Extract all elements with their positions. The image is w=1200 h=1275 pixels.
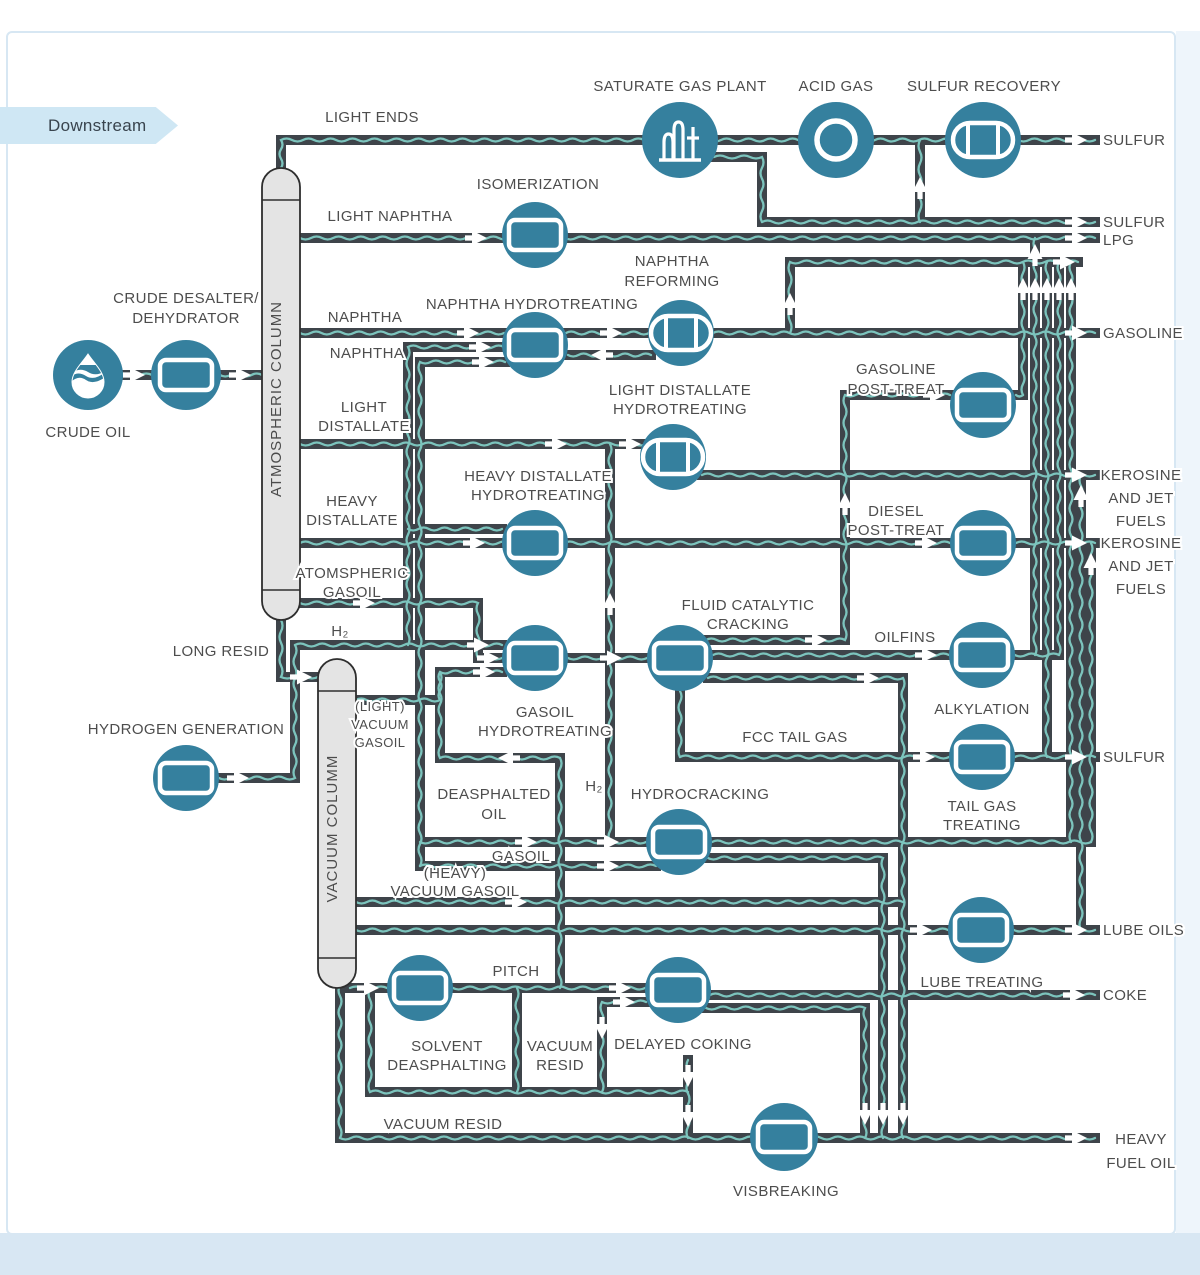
gasoil-label: GASOIL	[492, 848, 550, 865]
pipe-segment	[714, 157, 762, 222]
unit-circle	[387, 955, 453, 1021]
heavy-distallate-hydrotreating-label: HEAVY DISTALLATE	[464, 468, 612, 485]
flow-arrow-icon	[805, 633, 827, 648]
output-labels-layer: SULFURSULFURLPGGASOLINEKEROSINEAND JETFU…	[1101, 132, 1185, 1172]
light-distallate-hydrotreating-unit	[640, 424, 706, 490]
gasoline-post-treat-label: POST-TREAT	[847, 381, 944, 398]
hydrocracking-label: HYDROCRACKING	[631, 786, 770, 803]
naphtha-2-label: NAPHTHA	[330, 345, 404, 362]
heavy-vacuum-gasoil-label: (HEAVY)	[424, 865, 487, 882]
fluid-catalytic-cracking-unit	[647, 625, 713, 691]
unit-circle	[153, 745, 219, 811]
vacuum-resid-label: VACUUM RESID	[384, 1116, 503, 1133]
alkylation-unit	[949, 622, 1015, 688]
flow-arrow-icon	[227, 771, 249, 786]
flow-arrow-icon	[603, 593, 618, 615]
naphtha-reforming-label: REFORMING	[624, 273, 719, 290]
light-vacuum-gasoil-label: GASOIL	[355, 735, 406, 750]
light-distallate-label: LIGHT	[341, 399, 387, 416]
fluid-catalytic-cracking-label: CRACKING	[707, 616, 789, 633]
crude-oil-unit	[53, 340, 123, 410]
long-resid-label: LONG RESID	[173, 643, 270, 660]
flow-arrow-icon	[858, 1103, 873, 1125]
crude-desalter-unit	[151, 340, 221, 410]
heavy-distallate-hydrotreating-unit	[502, 510, 568, 576]
flow-arrow-icon	[595, 1017, 610, 1039]
tail-gas-treating-label: TREATING	[943, 817, 1021, 834]
heavy-vacuum-gasoil-label: VACUUM GASOIL	[390, 883, 519, 900]
tail-gas-treating-label: TAIL GAS	[947, 798, 1016, 815]
light-ends-label: LIGHT ENDS	[325, 109, 419, 126]
diesel-post-treat-unit	[950, 510, 1016, 576]
flow-arrow-icon	[1065, 215, 1087, 230]
flow-arrow-icon	[609, 981, 631, 996]
gasoline-post-treat-label: GASOLINE	[856, 361, 936, 378]
acid-gas-unit	[798, 102, 874, 178]
gasoline-label: GASOLINE	[1103, 325, 1183, 342]
saturate-gas-plant-unit	[642, 102, 718, 178]
flow-arrow-icon	[1065, 133, 1087, 148]
flow-arrow-icon	[498, 751, 520, 766]
kerosine-jet-2-label: AND JET	[1108, 558, 1173, 575]
flow-arrow-icon	[896, 1103, 911, 1125]
flow-arrow-icon	[600, 326, 622, 341]
unit-circle	[948, 897, 1014, 963]
gasoil-hydrotreating-unit	[502, 625, 568, 691]
fcc-tail-gas-label: FCC TAIL GAS	[742, 729, 847, 746]
acid-gas-label: ACID GAS	[799, 78, 874, 95]
flow-arrow-icon	[123, 368, 145, 383]
coke-label: COKE	[1103, 987, 1147, 1004]
delayed-coking-label: DELAYED COKING	[614, 1036, 752, 1053]
hydrogen-generation-label: HYDROGEN GENERATION	[88, 721, 285, 738]
heavy-fuel-oil-label: FUEL OIL	[1106, 1155, 1175, 1172]
vacuum-resid-box-label: VACUUM	[527, 1038, 593, 1055]
naphtha-reforming-label: NAPHTHA	[635, 253, 709, 270]
atomspheric-gasoil-label: GASOIL	[323, 584, 381, 601]
flow-arrow-icon	[1040, 278, 1055, 300]
light-vacuum-gasoil-label: VACUUM	[351, 717, 409, 732]
process-flow-diagram: ATMOSPHERIC COLUMNVACUUM COLUMMCRUDE OIL…	[0, 0, 1200, 1275]
isomerization-unit	[502, 202, 568, 268]
flow-arrow-icon	[357, 981, 379, 996]
h2-1-label: H₂	[331, 623, 348, 640]
vacuum-column: VACUUM COLUMM	[318, 659, 356, 988]
sulfur-3-label: SULFUR	[1103, 749, 1165, 766]
flow-arrow-icon	[472, 355, 494, 370]
unit-circle	[645, 957, 711, 1023]
alkylation-label: ALKYLATION	[934, 701, 1029, 718]
unit-circle	[640, 424, 706, 490]
fluid-catalytic-cracking-label: FLUID CATALYTIC	[682, 597, 815, 614]
deasphalted-oil-label: OIL	[481, 806, 506, 823]
flow-arrow-icon	[1028, 278, 1043, 300]
lube-treating-label: LUBE TREATING	[920, 974, 1043, 991]
flow-arrow-icon	[681, 1065, 696, 1087]
downstream-banner-label: Downstream	[0, 116, 146, 136]
flow-arrow-icon	[597, 835, 619, 850]
flow-arrow-icon	[473, 665, 495, 680]
flow-arrow-icon	[591, 348, 613, 363]
unit-circle	[647, 625, 713, 691]
isomerization-label: ISOMERIZATION	[477, 176, 599, 193]
solvent-deasphalting-unit	[387, 955, 453, 1021]
sulfur-2-label: SULFUR	[1103, 214, 1165, 231]
flow-arrow-icon	[910, 923, 932, 938]
solvent-deasphalting-label: SOLVENT	[411, 1038, 483, 1055]
light-distallate-label: DISTALLATE	[318, 418, 410, 435]
unit-circle	[950, 372, 1016, 438]
oilfins-label: OILFINS	[874, 629, 935, 646]
naphtha-hydrotreating-label: NAPHTHA HYDROTREATING	[426, 296, 638, 313]
flow-arrow-icon	[915, 648, 937, 663]
atmospheric-column: ATMOSPHERIC COLUMN	[262, 168, 300, 620]
flow-arrow-icon	[600, 651, 622, 666]
lube-treating-unit	[948, 897, 1014, 963]
flow-arrow-icon	[681, 1105, 696, 1127]
gasoil-hydrotreating-label: HYDROTREATING	[478, 723, 612, 740]
flow-arrow-icon	[465, 231, 487, 246]
crude-oil-label: CRUDE OIL	[45, 424, 130, 441]
flow-arrow-icon	[1064, 278, 1079, 300]
gasoline-post-treat-unit	[950, 372, 1016, 438]
flow-arrow-icon	[613, 995, 635, 1010]
flow-arrow-icon	[1065, 1131, 1087, 1146]
crude-desalter-label: DEHYDRATOR	[132, 310, 240, 327]
flow-arrow-icon	[913, 750, 935, 765]
hydrogen-generation-unit	[153, 745, 219, 811]
unit-circle	[945, 102, 1021, 178]
unit-circle	[502, 510, 568, 576]
naphtha-1-label: NAPHTHA	[328, 309, 402, 326]
diesel-post-treat-label: DIESEL	[868, 503, 924, 520]
downstream-banner: Downstream	[0, 107, 178, 144]
saturate-gas-plant-label: SATURATE GAS PLANT	[593, 78, 766, 95]
flow-arrow-icon	[619, 437, 641, 452]
unit-circle	[502, 312, 568, 378]
flow-arrow-icon	[913, 177, 928, 199]
unit-circle	[949, 622, 1015, 688]
flow-arrow-icon	[597, 859, 619, 874]
flow-arrow-icon	[1016, 278, 1031, 300]
gasoil-hydrotreating-label: GASOIL	[516, 704, 574, 721]
light-distallate-hydrotreating-label: LIGHT DISTALLATE	[609, 382, 751, 399]
visbreaking-label: VISBREAKING	[733, 1183, 839, 1200]
kerosine-jet-1-label: AND JET	[1108, 490, 1173, 507]
flow-arrow-icon	[876, 1103, 891, 1125]
lube-oils-label: LUBE OILS	[1103, 922, 1184, 939]
flow-arrow-icon	[545, 437, 567, 452]
unit-circle	[950, 510, 1016, 576]
tail-gas-treating-unit	[949, 724, 1015, 790]
heavy-distallate-label: HEAVY	[326, 493, 378, 510]
pipe-wave	[714, 156, 764, 223]
visbreaking-unit	[750, 1103, 818, 1171]
unit-circle	[648, 300, 714, 366]
lpg-label: LPG	[1103, 232, 1134, 249]
unit-circle	[502, 625, 568, 691]
column-label: VACUUM COLUMM	[324, 755, 341, 903]
delayed-coking-unit	[645, 957, 711, 1023]
flow-arrow-icon	[469, 340, 491, 355]
atomspheric-gasoil-label: ATOMSPHERIC	[295, 565, 408, 582]
light-vacuum-gasoil-label: (LIGHT)	[355, 699, 405, 714]
deasphalted-oil-label: DEASPHALTED	[437, 786, 550, 803]
vacuum-resid-box-label: RESID	[536, 1057, 584, 1074]
naphtha-reforming-unit	[648, 300, 714, 366]
unit-circle	[502, 202, 568, 268]
flow-arrow-icon	[838, 493, 853, 515]
heavy-distallate-hydrotreating-label: HYDROTREATING	[471, 487, 605, 504]
heavy-distallate-label: DISTALLATE	[306, 512, 398, 529]
flow-arrow-icon	[457, 326, 479, 341]
column-label: ATMOSPHERIC COLUMN	[268, 301, 285, 497]
h2-2-label: H₂	[585, 778, 602, 795]
naphtha-hydrotreating-unit	[502, 312, 568, 378]
kerosine-jet-2-label: FUELS	[1116, 581, 1166, 598]
sulfur-recovery-label: SULFUR RECOVERY	[907, 78, 1061, 95]
unit-circle	[646, 809, 712, 875]
heavy-fuel-oil-label: HEAVY	[1115, 1131, 1167, 1148]
sulfur-1-label: SULFUR	[1103, 132, 1165, 149]
flow-arrow-icon	[857, 671, 879, 686]
flow-arrow-icon	[467, 638, 489, 653]
pitch-label: PITCH	[493, 963, 540, 980]
light-distallate-hydrotreating-label: HYDROTREATING	[613, 401, 747, 418]
flow-arrow-icon	[1065, 231, 1087, 246]
light-naphtha-label: LIGHT NAPHTHA	[328, 208, 453, 225]
unit-circle	[642, 102, 718, 178]
hydrocracking-unit	[646, 809, 712, 875]
flow-arrow-icon	[463, 536, 485, 551]
unit-circle	[798, 102, 874, 178]
flow-arrow-icon	[229, 368, 251, 383]
unit-circle	[949, 724, 1015, 790]
flow-arrow-icon	[783, 293, 798, 315]
sulfur-recovery-unit	[945, 102, 1021, 178]
kerosine-jet-1-label: KEROSINE	[1101, 467, 1182, 484]
crude-desalter-label: CRUDE DESALTER/	[113, 290, 259, 307]
kerosine-jet-2-label: KEROSINE	[1101, 535, 1182, 552]
flow-arrow-icon	[1052, 278, 1067, 300]
flow-arrow-icon	[1063, 988, 1085, 1003]
diesel-post-treat-label: POST-TREAT	[847, 522, 944, 539]
solvent-deasphalting-label: DEASPHALTING	[387, 1057, 507, 1074]
kerosine-jet-1-label: FUELS	[1116, 513, 1166, 530]
